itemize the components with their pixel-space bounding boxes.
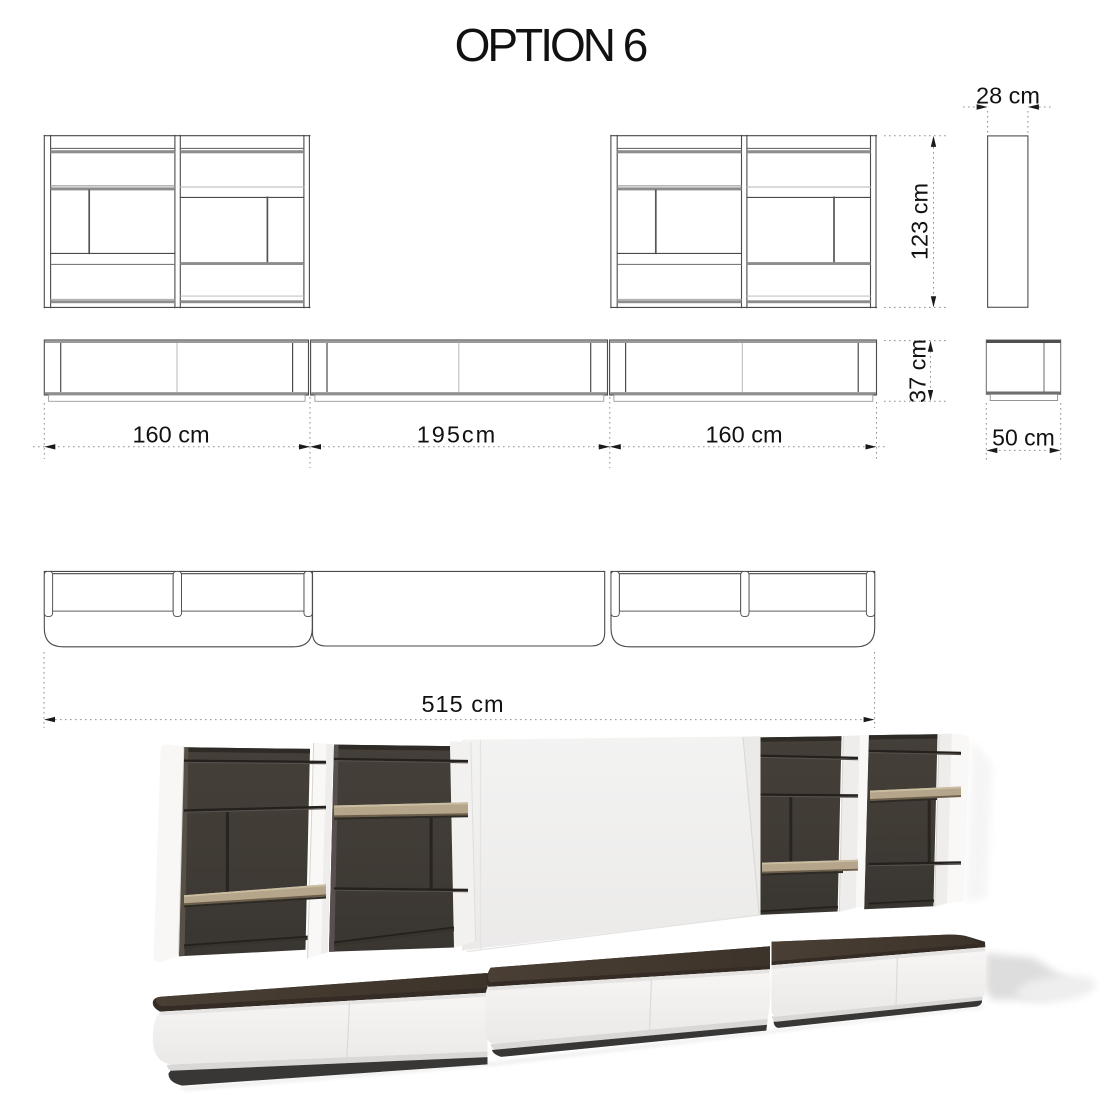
svg-text:160 cm: 160 cm [705,422,782,448]
svg-text:123 cm: 123 cm [907,183,933,260]
svg-text:50 cm: 50 cm [992,425,1055,451]
svg-text:28 cm: 28 cm [976,83,1040,109]
svg-text:160 cm: 160 cm [132,422,209,448]
svg-text:37 cm: 37 cm [905,339,931,403]
svg-text:195cm: 195cm [417,422,498,448]
svg-text:515 cm: 515 cm [421,691,504,717]
svg-text:OPTION 6: OPTION 6 [455,19,647,71]
